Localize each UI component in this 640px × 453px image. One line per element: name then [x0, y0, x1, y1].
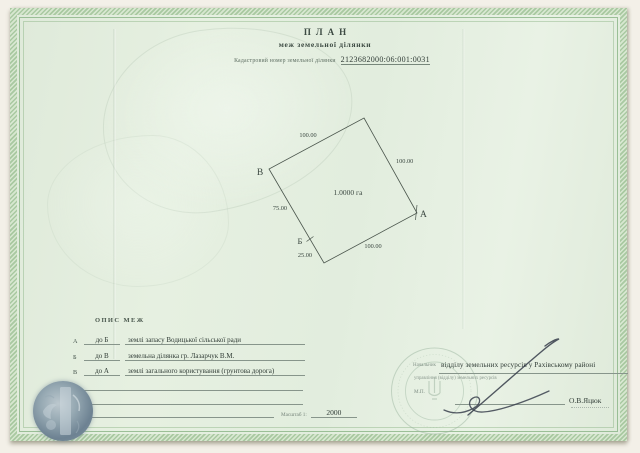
round-stamp-artwork [33, 381, 93, 441]
boundary-to: до Б [84, 336, 120, 345]
boundary-row: Е Масштаб 1: 2000 [73, 407, 357, 418]
boundary-description: землі запасу Водицької сільської ради [125, 336, 305, 345]
boundary-blank-line [84, 390, 303, 391]
segment-length-75: 75.00 [273, 205, 287, 212]
boundary-row: А до Б землі запасу Водицької сільської … [73, 334, 305, 345]
stamp-circle-shape [46, 420, 56, 430]
vertex-label-a: А [420, 210, 427, 220]
boundary-row: В до А землі загального користування (гр… [73, 365, 305, 376]
handwritten-signature [428, 333, 573, 425]
boundary-description: землі загального користування (грунтова … [125, 367, 305, 376]
boundary-blank-line [84, 404, 303, 405]
plot-diagram: В А Б 100.00 100.00 100.00 75.00 25.00 1… [240, 105, 440, 275]
boundary-from: Б [73, 354, 84, 361]
side-length-top-left: 100.00 [299, 132, 316, 139]
boundary-blank-line [84, 417, 274, 418]
paper-fold-line [113, 29, 116, 359]
document-subtitle: меж земельної ділянки [165, 40, 485, 49]
scale-label: Масштаб 1: [281, 412, 307, 418]
cadastral-label: Кадастровий номер земельної ділянки [234, 58, 336, 64]
boundary-row: Д [73, 394, 303, 405]
scanned-land-plan-document: ПЛАН меж земельної ділянки Кадастровий н… [0, 0, 640, 453]
boundary-row: Г [73, 380, 303, 391]
paper-stain [47, 135, 229, 287]
signature-stroke [468, 339, 559, 415]
cadastral-line: Кадастровий номер земельної ділянки21236… [165, 55, 485, 64]
signatory-name: О.В.Яцюк [569, 396, 601, 405]
boundary-row: Б до В земельна ділянка гр. Лазарчук В.М… [73, 350, 305, 361]
segment-length-25: 25.00 [298, 252, 312, 259]
stamp-place-label: М.П. [414, 389, 425, 395]
document-title: ПЛАН [165, 27, 485, 37]
round-stamp [33, 381, 93, 441]
signature-stroke [444, 391, 549, 413]
boundary-from: В [73, 369, 84, 376]
cadastral-number: 2123682000:06:001:0031 [341, 55, 430, 65]
title-block: ПЛАН меж земельної ділянки Кадастровий н… [165, 27, 485, 64]
boundary-from: А [73, 338, 84, 345]
signatory-caption-line [571, 407, 609, 408]
plot-area-label: 1.0000 га [334, 188, 364, 197]
boundary-to: до В [84, 352, 120, 361]
boundaries-heading: ОПИС МЕЖ [95, 317, 145, 324]
vertex-label-b: Б [298, 236, 303, 246]
scale-value: 2000 [311, 408, 357, 418]
vertex-label-v: В [257, 168, 263, 178]
boundary-description: земельна ділянка гр. Лазарчук В.М. [125, 352, 305, 361]
paper-fold-line [462, 29, 465, 329]
side-length-bottom: 100.00 [364, 243, 381, 250]
point-b-tick [307, 237, 314, 242]
stamp-column-shape [60, 387, 71, 435]
stamp-leaf-shape [43, 404, 57, 419]
side-length-top-right: 100.00 [396, 158, 413, 165]
boundary-to: до А [84, 367, 120, 376]
stamp-curve-shape [73, 395, 79, 411]
